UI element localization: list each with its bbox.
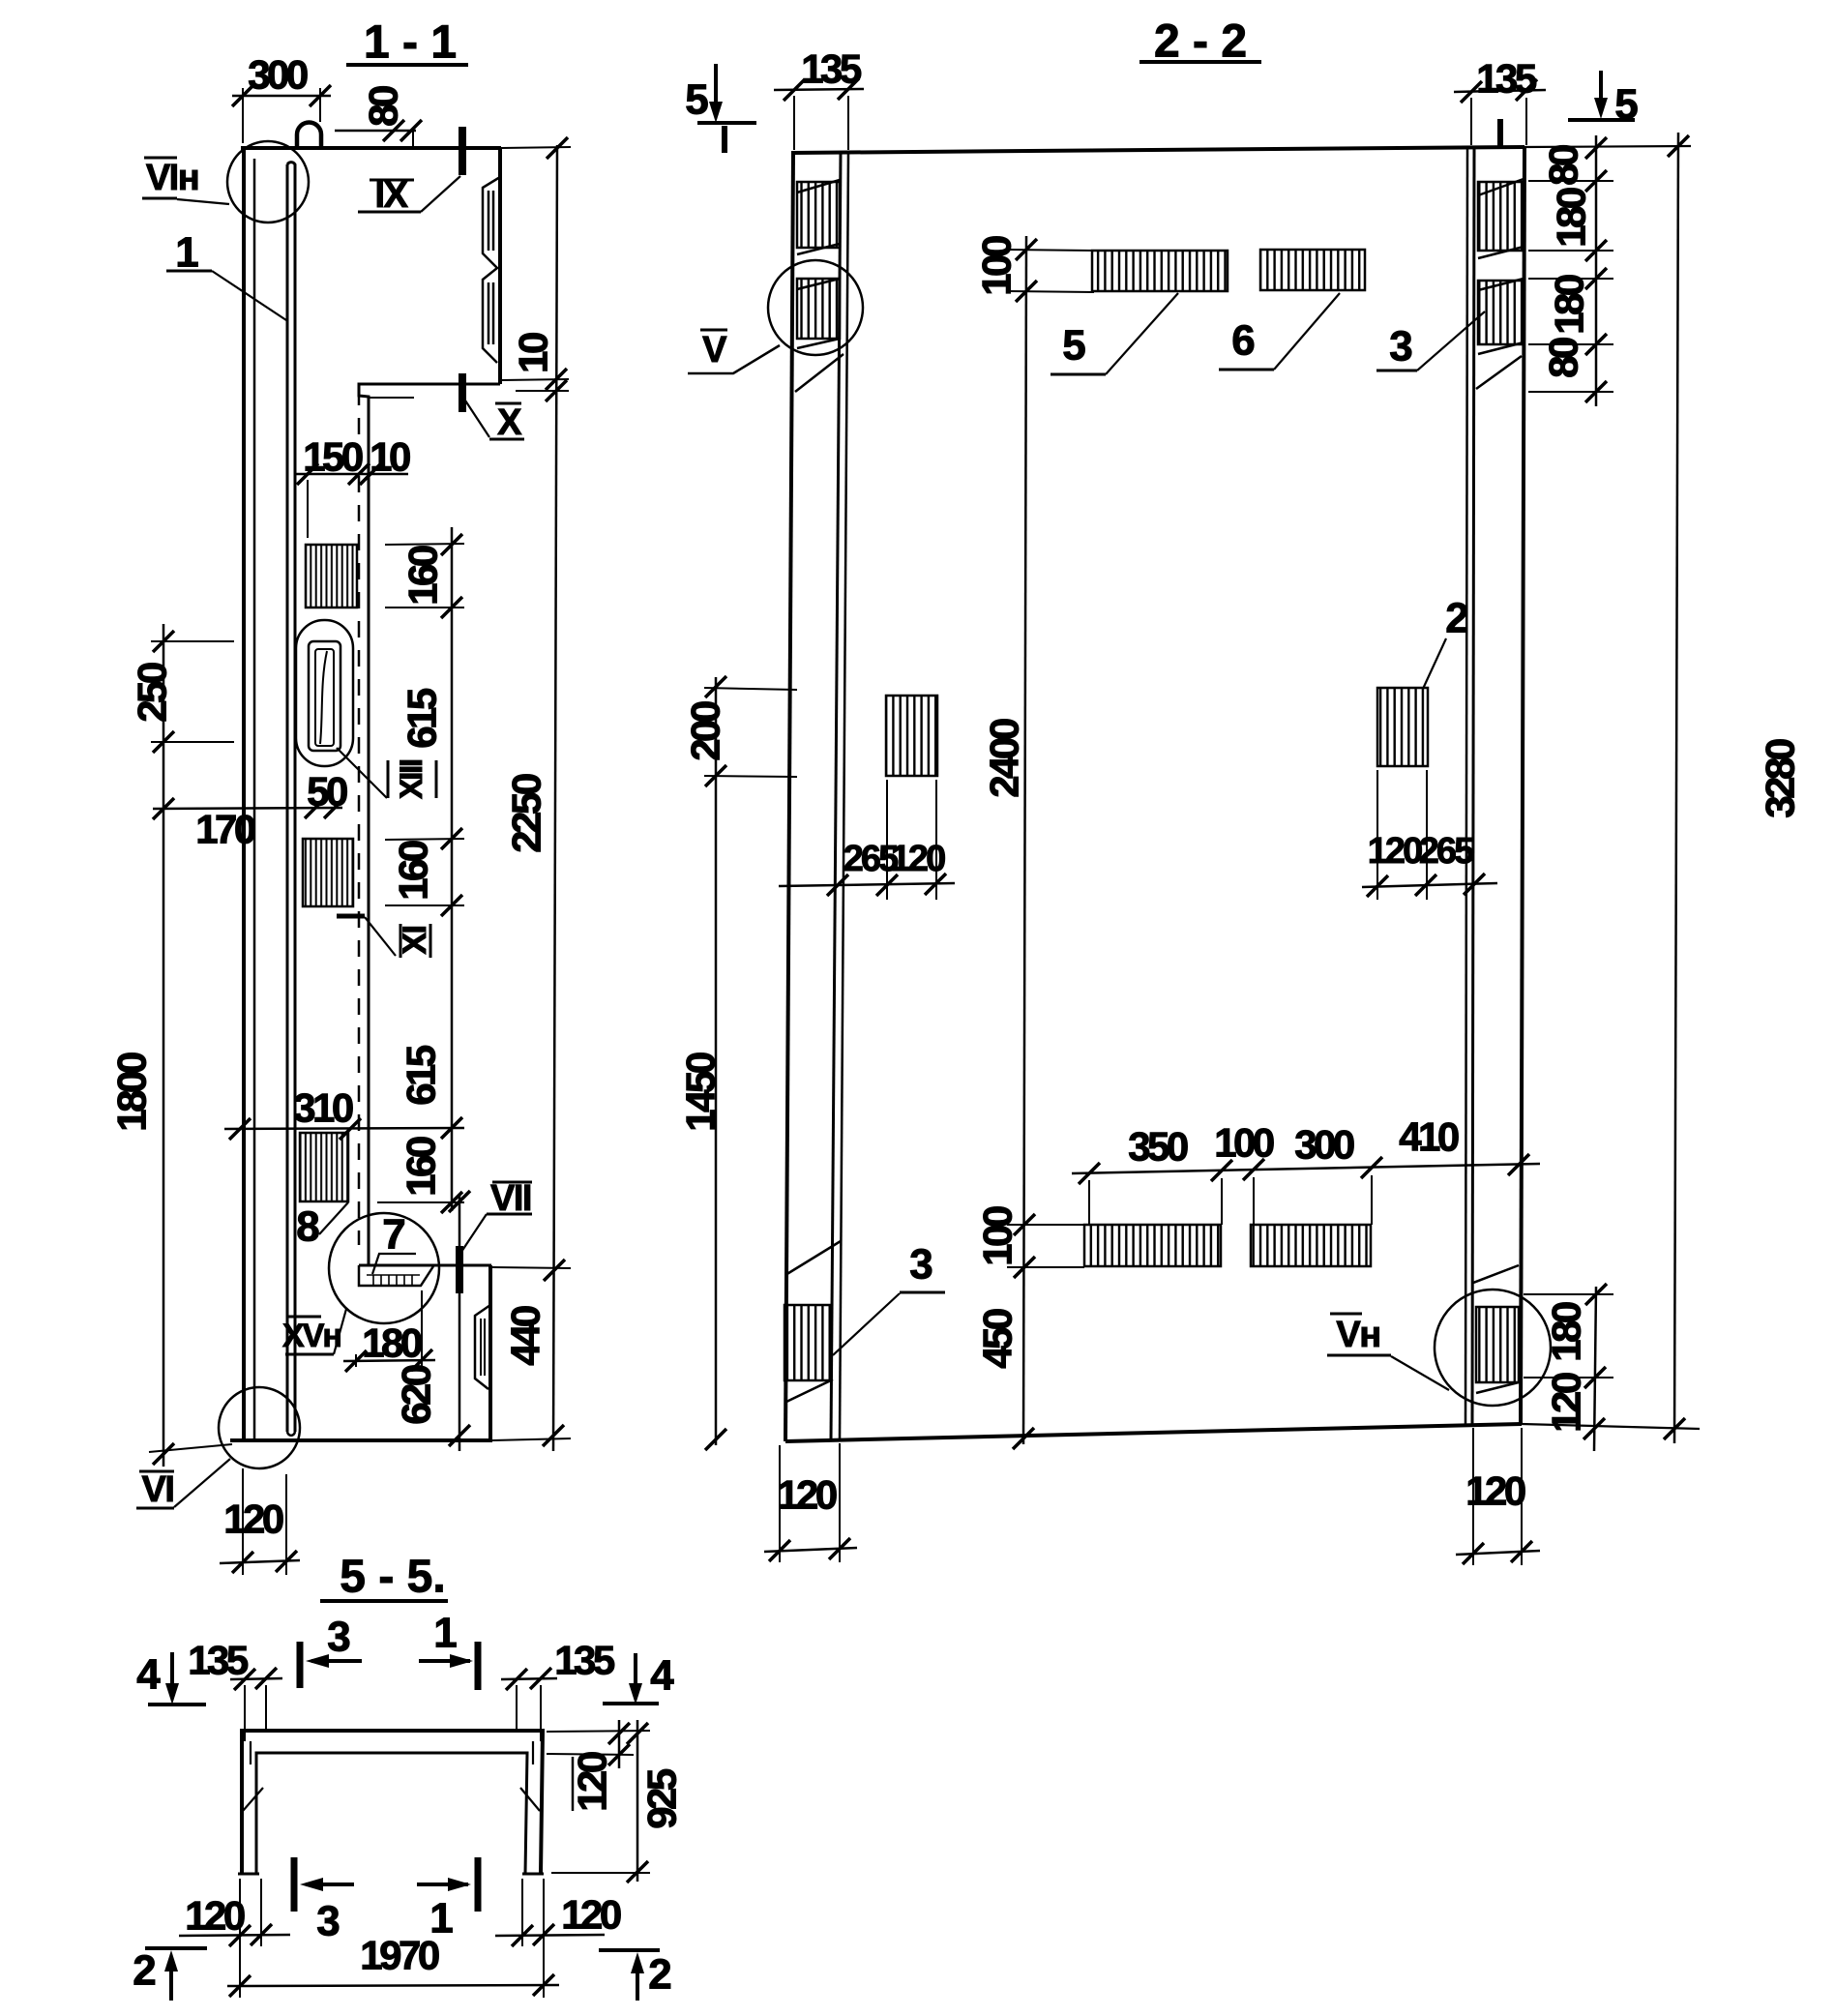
svg-text:250: 250 — [130, 663, 175, 723]
svg-text:Vн: Vн — [1336, 1315, 1379, 1355]
svg-text:100: 100 — [1214, 1120, 1274, 1166]
svg-text:8: 8 — [296, 1203, 319, 1251]
svg-text:XIII: XIII — [394, 760, 429, 799]
svg-text:620: 620 — [394, 1365, 439, 1425]
svg-text:5: 5 — [1062, 322, 1085, 370]
svg-text:VIн: VIн — [146, 158, 198, 198]
svg-text:120: 120 — [1465, 1468, 1525, 1514]
svg-text:2: 2 — [648, 1951, 670, 1999]
svg-text:3: 3 — [909, 1241, 932, 1289]
svg-text:5 - 5.: 5 - 5. — [340, 1552, 445, 1603]
svg-text:300: 300 — [1294, 1122, 1354, 1168]
svg-text:180: 180 — [1549, 188, 1594, 248]
svg-text:120: 120 — [570, 1752, 615, 1812]
svg-text:300: 300 — [248, 52, 308, 98]
svg-text:VI: VI — [142, 1469, 174, 1510]
svg-text:120: 120 — [561, 1892, 621, 1938]
svg-text:3280: 3280 — [1758, 739, 1803, 818]
svg-text:100: 100 — [974, 236, 1020, 296]
svg-text:2400: 2400 — [982, 719, 1027, 798]
svg-text:180: 180 — [362, 1320, 422, 1366]
svg-text:2250: 2250 — [504, 774, 549, 853]
svg-text:180: 180 — [1547, 275, 1592, 335]
svg-text:135: 135 — [554, 1638, 615, 1683]
svg-text:XI: XI — [397, 926, 433, 954]
svg-text:135: 135 — [188, 1638, 249, 1683]
svg-text:1 - 1: 1 - 1 — [364, 17, 457, 69]
svg-text:615: 615 — [399, 1045, 444, 1106]
svg-text:1970: 1970 — [360, 1933, 439, 1978]
svg-text:450: 450 — [975, 1309, 1021, 1369]
svg-text:10: 10 — [511, 333, 556, 373]
svg-text:120: 120 — [1544, 1373, 1589, 1433]
svg-text:5: 5 — [685, 76, 708, 124]
svg-text:440: 440 — [503, 1306, 548, 1366]
svg-text:160: 160 — [399, 1137, 444, 1197]
svg-text:120: 120 — [1368, 831, 1422, 872]
svg-text:IX: IX — [375, 175, 409, 216]
svg-text:120: 120 — [223, 1497, 283, 1542]
svg-text:350: 350 — [1128, 1124, 1188, 1170]
svg-text:3: 3 — [316, 1898, 339, 1945]
svg-text:1: 1 — [175, 229, 198, 277]
svg-text:7: 7 — [382, 1211, 404, 1259]
svg-text:4: 4 — [136, 1651, 161, 1699]
svg-text:615: 615 — [400, 688, 445, 749]
svg-text:3: 3 — [327, 1614, 349, 1661]
svg-text:180: 180 — [1544, 1302, 1589, 1362]
svg-text:2: 2 — [133, 1947, 155, 1995]
svg-text:150: 150 — [303, 434, 363, 480]
svg-text:2 - 2: 2 - 2 — [1154, 16, 1247, 68]
svg-text:170: 170 — [195, 807, 255, 852]
svg-text:6: 6 — [1231, 317, 1254, 365]
svg-text:3: 3 — [1389, 323, 1411, 371]
svg-text:410: 410 — [1399, 1114, 1459, 1160]
svg-text:160: 160 — [400, 546, 446, 606]
svg-text:4: 4 — [650, 1652, 674, 1700]
svg-text:310: 310 — [293, 1085, 353, 1131]
svg-text:X: X — [497, 402, 522, 443]
svg-text:XVн: XVн — [282, 1318, 340, 1354]
svg-text:135: 135 — [1476, 56, 1537, 102]
svg-text:120: 120 — [777, 1472, 837, 1518]
svg-text:1800: 1800 — [109, 1052, 155, 1132]
svg-text:925: 925 — [639, 1768, 685, 1829]
svg-text:10: 10 — [370, 434, 410, 480]
svg-text:100: 100 — [975, 1206, 1021, 1266]
svg-text:1: 1 — [433, 1610, 457, 1657]
svg-text:V: V — [702, 330, 727, 371]
svg-text:2: 2 — [1445, 595, 1467, 642]
svg-text:120: 120 — [185, 1893, 245, 1939]
svg-text:200: 200 — [683, 701, 728, 761]
svg-text:80: 80 — [1541, 145, 1586, 186]
svg-text:160: 160 — [391, 841, 436, 901]
svg-text:80: 80 — [361, 86, 406, 127]
